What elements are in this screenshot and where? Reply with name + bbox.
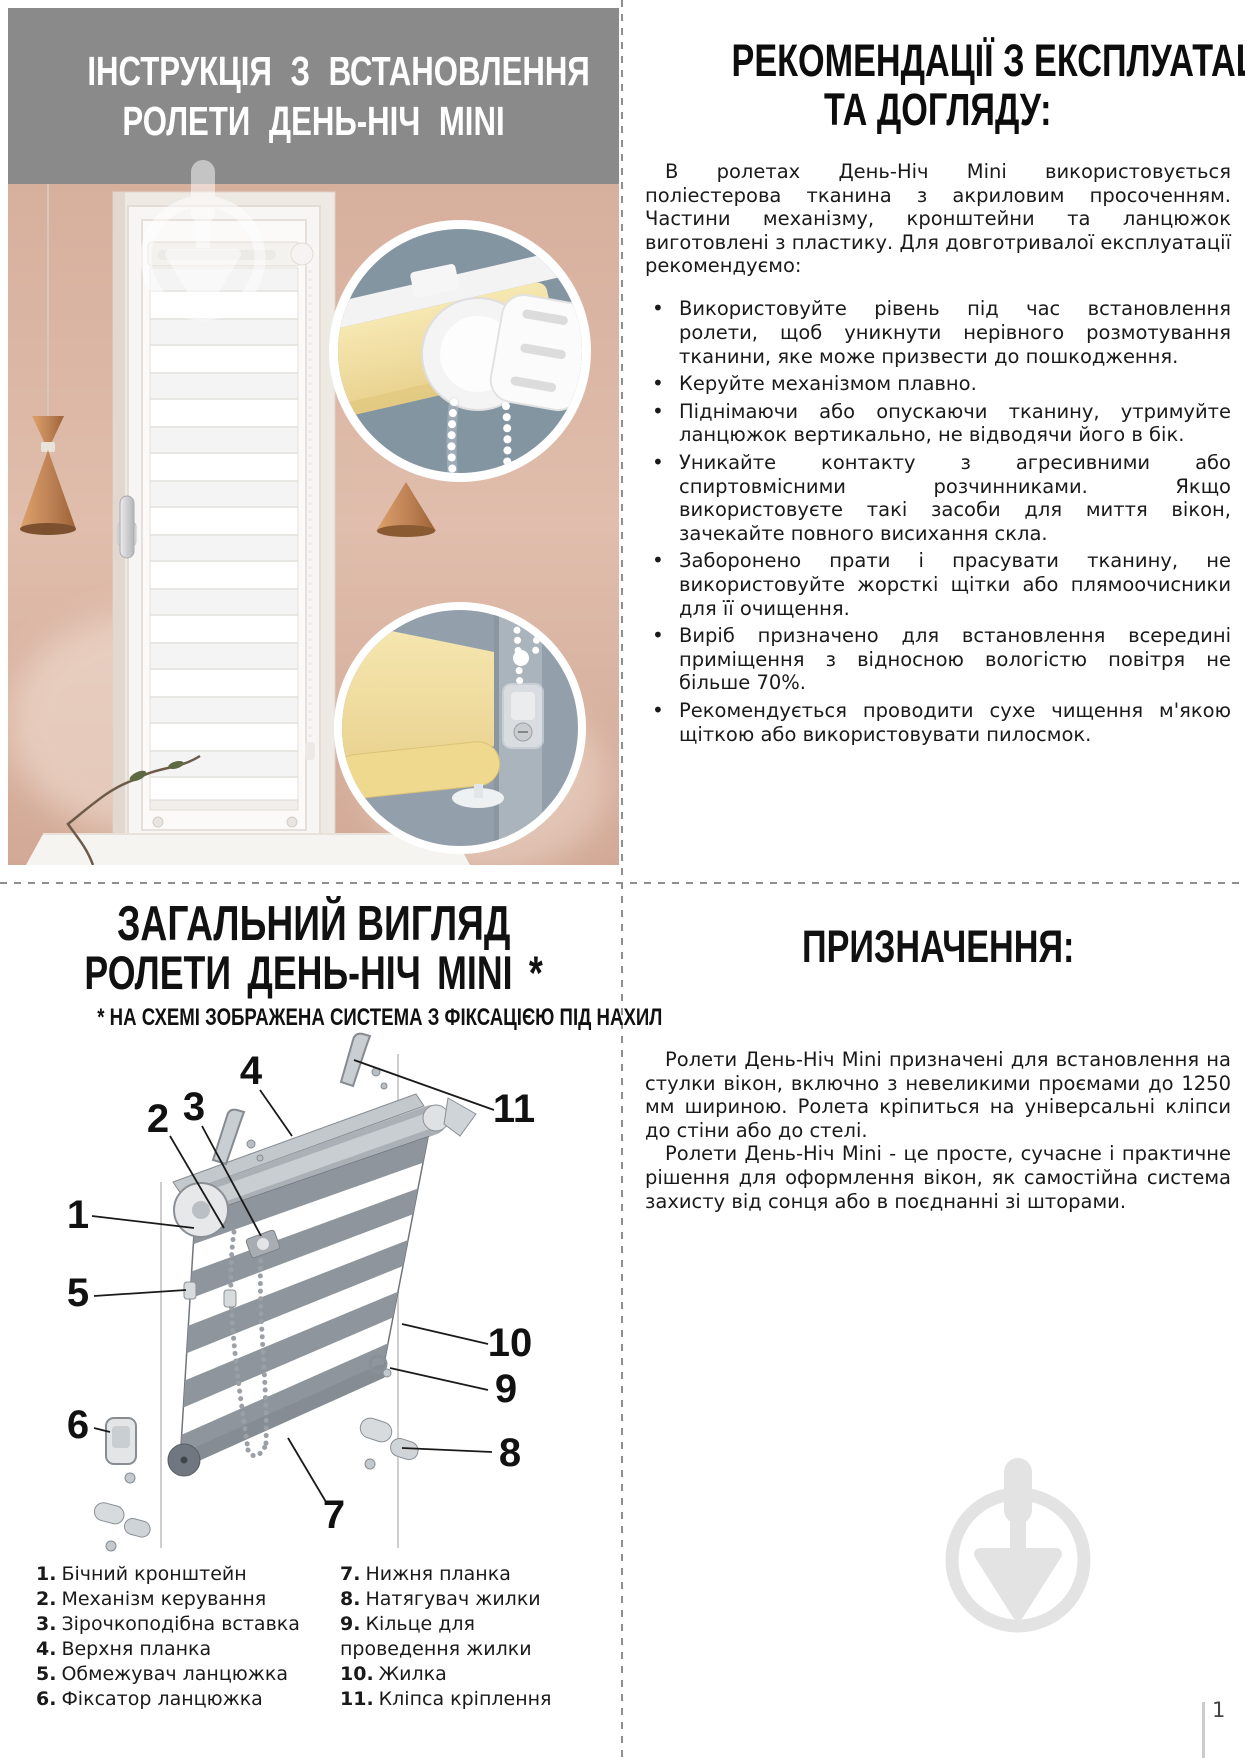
- recommendations-title-line1: РЕКОМЕНДАЦІЇ З ЕКСПЛУАТАЦІЇ: [645, 36, 1231, 85]
- wire-tensioner: [358, 1416, 421, 1469]
- instruction-page: ІНСТРУКЦІЯ З ВСТАНОВЛЕННЯ РОЛЕТИ ДЕНЬ-НІ…: [0, 0, 1245, 1758]
- recommendation-item: Заборонено прати і прасувати тканину, не…: [645, 549, 1231, 620]
- callout-10: 10: [488, 1321, 533, 1365]
- legend-item: 11.Кліпса кріплення: [340, 1687, 592, 1712]
- install-title-line1: ІНСТРУКЦІЯ З ВСТАНОВЛЕННЯ: [8, 46, 619, 96]
- legend-item: 5.Обмежувач ланцюжка: [36, 1662, 336, 1687]
- purpose-title-wrap: ПРИЗНАЧЕННЯ:: [645, 922, 1231, 971]
- overview-titles: ЗАГАЛЬНИЙ ВИГЛЯД РОЛЕТИ ДЕНЬ-НІЧ MINI * …: [8, 898, 619, 1033]
- window-handle: [118, 496, 136, 558]
- recommendation-item: Піднімаючи або опускаючи тканину, утриму…: [645, 400, 1231, 447]
- legend-item: 10.Жилка: [340, 1662, 592, 1687]
- blind-exploded-diagram: 1 2 3 4 5 6 7 8 9 10 11: [8, 1032, 614, 1552]
- mount-clip: [341, 1034, 387, 1089]
- callout-6: 6: [67, 1403, 89, 1447]
- recommendations-list: Використовуйте рівень під час встановлен…: [645, 297, 1231, 746]
- recommendation-item: Використовуйте рівень під час встановлен…: [645, 297, 1231, 368]
- callout-4: 4: [240, 1049, 263, 1093]
- recommendations-intro: В ролетах День-Ніч Mini використовується…: [645, 160, 1231, 278]
- recommendations-section: РЕКОМЕНДАЦІЇ З ЕКСПЛУАТАЦІЇ ТА ДОГЛЯДУ: …: [645, 36, 1231, 746]
- purpose-paragraph-1: Ролети День-Ніч Mini призначені для вста…: [645, 1048, 1231, 1142]
- legend-item: 4.Верхня планка: [36, 1637, 336, 1662]
- legend-item: 9.Кільце для проведення жилки: [340, 1612, 592, 1662]
- callout-7: 7: [323, 1493, 345, 1537]
- legend-item: 8.Натягувач жилки: [340, 1587, 592, 1612]
- callout-11: 11: [493, 1087, 535, 1131]
- callout-8: 8: [499, 1431, 521, 1475]
- recommendation-item: Керуйте механізмом плавно.: [645, 372, 1231, 396]
- callout-5: 5: [67, 1271, 89, 1315]
- footer-rule: [1202, 1702, 1205, 1758]
- recommendation-item: Рекомендується проводити сухе чищення м'…: [645, 699, 1231, 746]
- end-cap-right: [444, 1098, 476, 1136]
- recommendation-item: Виріб призначено для встановлення всеред…: [645, 624, 1231, 695]
- callout-2: 2: [147, 1097, 169, 1141]
- purpose-section: Ролети День-Ніч Mini призначені для вста…: [645, 1048, 1231, 1213]
- callout-9: 9: [495, 1367, 517, 1411]
- legend-item: 3.Зірочкоподібна вставка: [36, 1612, 336, 1637]
- recommendations-title-line2: ТА ДОГЛЯДУ:: [645, 85, 1231, 134]
- overview-note: * НА СХЕМІ ЗОБРАЖЕНА СИСТЕМА З ФІКСАЦІЄЮ…: [8, 1002, 619, 1033]
- vertical-dashed-divider: [621, 0, 623, 1758]
- chain-fixator: [92, 1418, 152, 1551]
- product-photo: [8, 184, 619, 865]
- page-number: 1: [1212, 1698, 1225, 1722]
- install-title-line2: РОЛЕТИ ДЕНЬ-НІЧ MINI: [8, 96, 619, 146]
- recommendation-item: Уникайте контакту з агресивними або спир…: [645, 451, 1231, 545]
- legend-column-right: 7.Нижня планка 8.Натягувач жилки 9.Кільц…: [340, 1562, 592, 1712]
- purpose-paragraph-2: Ролети День-Ніч Mini - це просте, сучасн…: [645, 1142, 1231, 1213]
- purpose-title: ПРИЗНАЧЕННЯ:: [645, 922, 1231, 971]
- overview-title-line1: ЗАГАЛЬНИЙ ВИГЛЯД: [8, 898, 619, 950]
- legend-item: 7.Нижня планка: [340, 1562, 592, 1587]
- overview-title-line2: РОЛЕТИ ДЕНЬ-НІЧ MINI *: [8, 950, 619, 997]
- inset-fixator-closeup: [332, 602, 586, 854]
- legend-column-left: 1.Бічний кронштейн 2.Механізм керування …: [36, 1562, 336, 1712]
- horizontal-dashed-divider: [0, 882, 1245, 884]
- brand-watermark-icon: [938, 1456, 1102, 1638]
- legend-item: 6.Фіксатор ланцюжка: [36, 1687, 336, 1712]
- callout-1: 1: [67, 1193, 89, 1237]
- legend-item: 1.Бічний кронштейн: [36, 1562, 336, 1587]
- brand-watermark-icon: [128, 156, 278, 328]
- photo-illustration: [8, 184, 619, 865]
- chain-fixator-clear: [503, 684, 543, 748]
- callout-3: 3: [183, 1085, 205, 1129]
- legend-item: 2.Механізм керування: [36, 1587, 336, 1612]
- install-title-banner: ІНСТРУКЦІЯ З ВСТАНОВЛЕННЯ РОЛЕТИ ДЕНЬ-НІ…: [8, 8, 619, 184]
